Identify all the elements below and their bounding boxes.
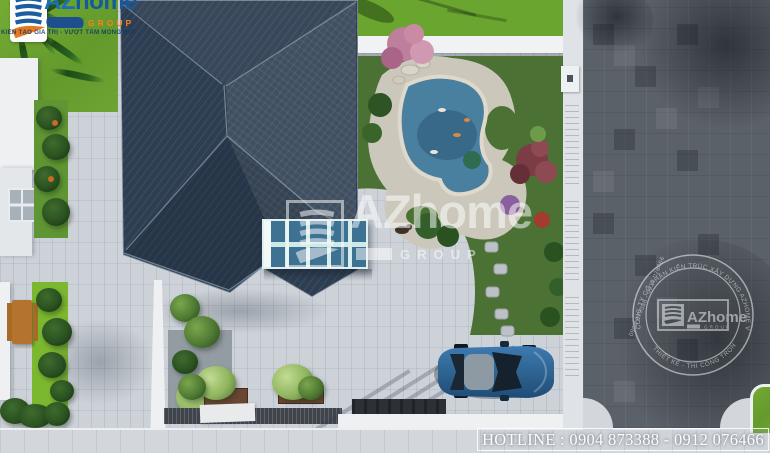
watermark-group-text: GROUP — [400, 247, 483, 262]
logo-az: AZ — [44, 0, 75, 15]
neighbor-house-roof — [0, 58, 38, 170]
shrub — [172, 350, 198, 374]
fence-panel — [565, 292, 579, 376]
hotline-text: HOTLINE : 0904 873388 - 0912 076466 — [482, 430, 764, 450]
koi-fish — [453, 133, 461, 137]
shrub — [36, 106, 62, 130]
garden-area — [352, 0, 570, 340]
fence-panel — [565, 196, 579, 280]
hotline-banner: HOTLINE : 0904 873388 - 0912 076466 — [477, 428, 769, 451]
green-bush — [362, 123, 382, 143]
logo-swoosh — [45, 17, 86, 28]
aerial-render-scene: AZhome GROUP KIẾN TẠO GIÁ TRỊ - VƯỢT TẦM… — [0, 0, 770, 453]
green-bush — [540, 307, 560, 327]
fence-post — [561, 66, 579, 92]
watermark-wordmark: AZhome — [350, 184, 532, 239]
teal-bush — [463, 151, 481, 169]
green-bush — [368, 93, 392, 117]
logo-wordmark: AZhome — [44, 0, 137, 16]
fence-panel — [565, 100, 579, 184]
watermark-az: AZ — [350, 185, 411, 238]
shrub — [42, 198, 70, 226]
koi-fish — [430, 150, 438, 154]
neighbor-house-wall — [0, 168, 32, 256]
car-roof — [464, 354, 494, 390]
house-shadow — [45, 318, 155, 406]
flower-accent — [48, 176, 54, 182]
planter-shrub — [298, 376, 324, 400]
azhome-logo: AZhome GROUP KIẾN TẠO GIÁ TRỊ - VƯỢT TẦM… — [0, 0, 200, 60]
center-watermark: AZhome GROUP — [286, 192, 556, 276]
stamp-group-text: GROUP — [704, 324, 731, 329]
planter-shrub — [178, 374, 206, 400]
watermark-swoosh — [356, 248, 392, 260]
green-bush — [530, 126, 546, 142]
grass-island — [485, 106, 519, 150]
wood-table — [12, 300, 32, 344]
wood-bench — [7, 303, 12, 341]
logo-home: home — [75, 0, 137, 15]
car — [430, 338, 560, 404]
car-mirror — [500, 395, 509, 401]
skylight-window — [8, 188, 36, 222]
tree-shadow — [573, 0, 653, 55]
post-cap — [567, 75, 573, 82]
watermark-building-icon — [286, 200, 344, 268]
koi-fish — [438, 108, 446, 112]
shrub — [184, 316, 220, 348]
shrub — [36, 288, 62, 312]
wood-bench — [33, 303, 38, 341]
shrub — [42, 134, 70, 160]
palm-frond — [50, 66, 106, 84]
company-stamp: CÔNG TY CỔ PHẦN KIẾN TRÚC XÂY DỰNG AZHOM… — [628, 252, 758, 380]
logo-slogan: KIẾN TẠO GIÁ TRỊ - VƯỢT TẦM MONG ĐỢI — [1, 29, 171, 36]
canopy-beam — [264, 221, 271, 267]
gate-slab — [200, 403, 256, 423]
shrub — [34, 166, 60, 192]
flower-accent — [52, 120, 58, 126]
grass-corner — [750, 384, 770, 433]
car-mirror — [500, 341, 509, 347]
logo-group-text: GROUP — [88, 18, 134, 28]
koi-fish — [464, 118, 470, 122]
stamp-swoosh-bar — [687, 325, 700, 329]
watermark-home: home — [411, 185, 532, 238]
boundary-wall-left — [0, 282, 10, 400]
